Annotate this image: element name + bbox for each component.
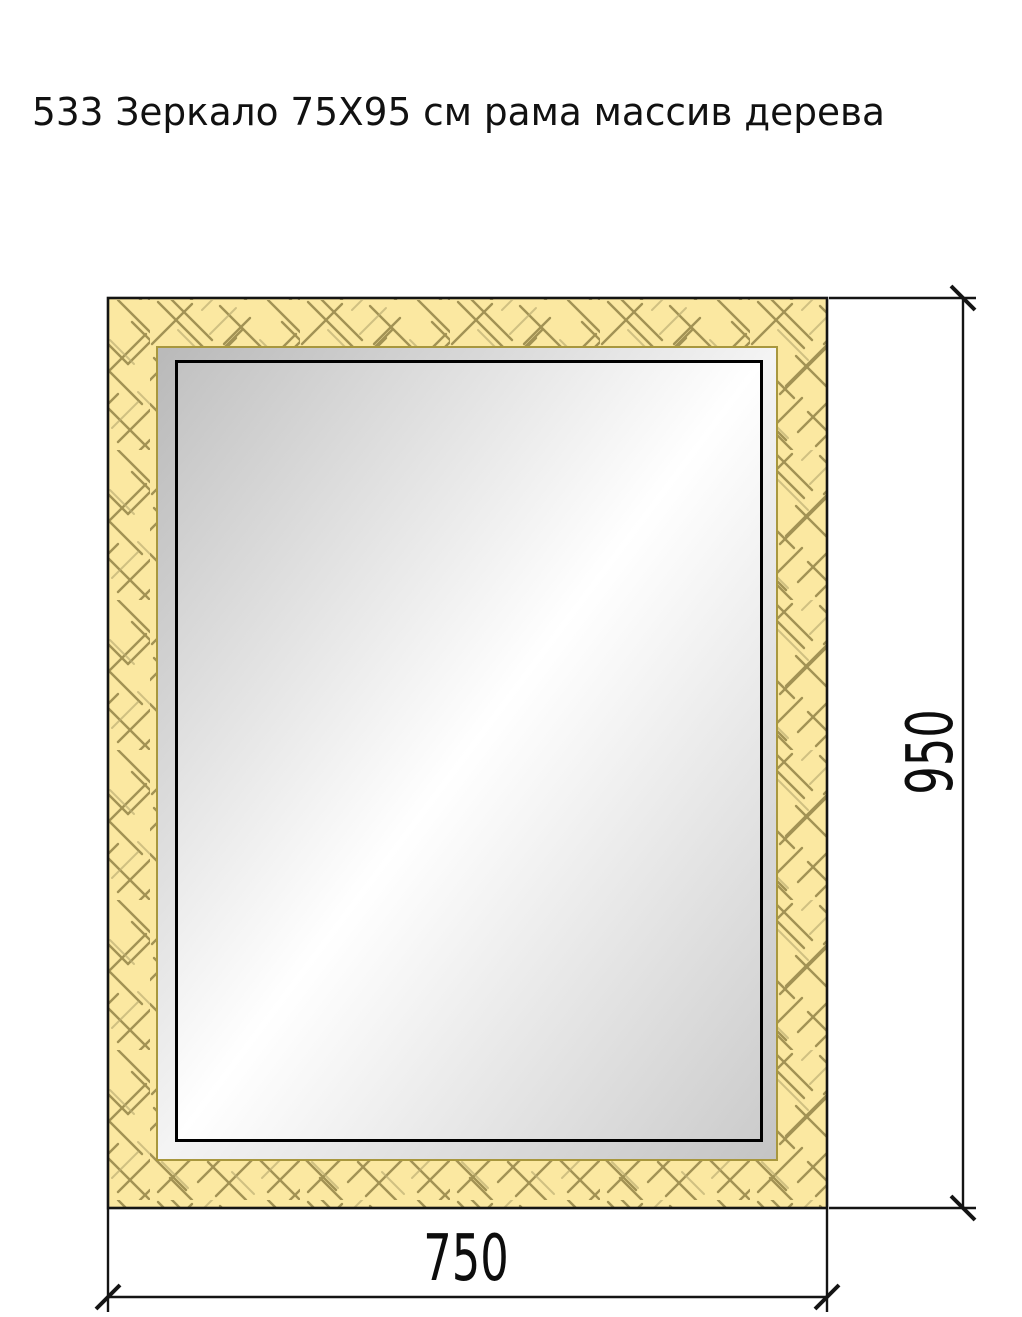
mirror-glass-surface	[177, 362, 762, 1141]
drawing-page: 533 Зеркало 75X95 см рама массив дерева	[0, 0, 1022, 1317]
width-dimension-label: 750	[407, 1227, 526, 1291]
height-dimension-label: 950	[899, 693, 963, 812]
mirror-technical-drawing	[0, 0, 1022, 1317]
